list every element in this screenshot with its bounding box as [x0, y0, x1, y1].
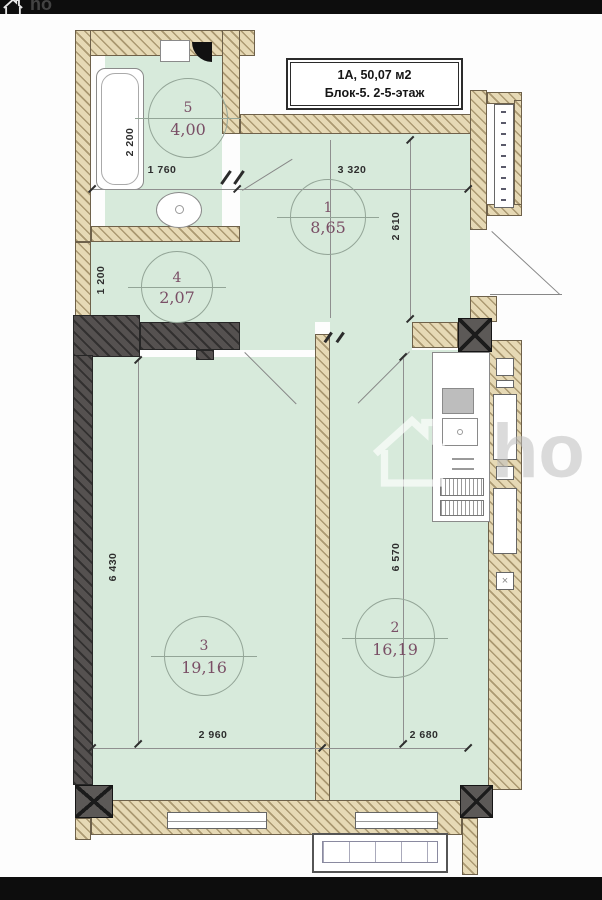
right-wall-inset-3: [496, 466, 514, 480]
dim-line-2610: [410, 140, 411, 320]
dim-1200: 1 200: [95, 250, 107, 310]
title-line-2: Блок-5. 2-5-этаж: [325, 84, 425, 102]
wall-right-upper: [470, 90, 487, 230]
appliance-grid-1: [440, 478, 484, 496]
room-number: 1: [291, 200, 365, 216]
right-wall-window-upper: [493, 394, 517, 460]
column-mid-right: [458, 318, 492, 352]
kitchen-sink: [442, 418, 478, 446]
wall-left-wc: [75, 242, 91, 322]
room-label-3: 3 19,16: [164, 616, 244, 696]
dim-line-top: [92, 189, 468, 190]
right-wall-marker-box: ×: [496, 572, 514, 590]
room-label-2: 2 16,19: [355, 598, 435, 678]
window-room2: [355, 812, 438, 829]
right-wall-window-lower: [493, 488, 517, 554]
room-number: 4: [142, 270, 212, 286]
wall-right-balcony-side: [462, 818, 478, 875]
window-room3: [167, 812, 267, 829]
wall-dark-left-lower: [73, 355, 93, 785]
wall-dark-block-left: [73, 315, 140, 357]
washbasin: [156, 192, 202, 228]
title-line-1: 1А, 50,07 м2: [338, 66, 412, 84]
right-wall-inset-1: [496, 358, 514, 376]
room-area: 16,19: [356, 640, 434, 659]
bottom-letterbox-bar: [0, 877, 602, 900]
wall-left-upper: [75, 30, 91, 242]
room-label-1: 1 8,65: [290, 179, 366, 255]
room-number: 2: [356, 620, 434, 636]
room-number: 5: [149, 100, 227, 116]
doorway-hall-to-room3: [240, 322, 315, 350]
floor-plan-screenshot: ho: [0, 0, 602, 900]
dim-2960: 2 960: [163, 729, 263, 741]
column-bottom-right: [460, 785, 493, 818]
entry-niche-window: [494, 104, 514, 208]
room-label-4: 4 2,07: [141, 251, 213, 323]
wall-kitchen-entry: [412, 322, 458, 348]
dim-line-bottom: [92, 748, 468, 749]
room-area: 19,16: [165, 658, 243, 677]
dim-2680: 2 680: [374, 729, 474, 741]
wall-bath-wc-divider: [91, 226, 240, 242]
stove: [442, 388, 474, 414]
title-block: 1А, 50,07 м2 Блок-5. 2-5-этаж: [286, 58, 463, 110]
duct-shaft-box: [160, 40, 190, 62]
dim-2200: 2 200: [124, 112, 136, 172]
appliance-grid-2: [440, 500, 484, 516]
room-area: 2,07: [142, 288, 212, 307]
room-area: 4,00: [149, 120, 227, 139]
entry-door-base-line: [490, 294, 562, 295]
room-number: 3: [165, 638, 243, 654]
wall-hall-top: [240, 114, 487, 134]
counter-symbol: [452, 458, 474, 470]
wall-left-bottom-stub: [75, 818, 91, 840]
watermark-house-icon: [2, 0, 24, 18]
room-area: 8,65: [291, 218, 365, 237]
balcony-rail: [322, 841, 438, 863]
column-bottom-left: [75, 785, 113, 818]
dim-6570: 6 570: [390, 522, 402, 592]
balcony: [312, 833, 448, 873]
dim-2610: 2 610: [390, 191, 402, 261]
top-letterbox-bar: ho: [0, 0, 602, 14]
dim-line-6570: [403, 357, 404, 745]
dim-line-6430: [138, 360, 139, 745]
entry-door-leaf: [491, 231, 560, 295]
watermark-text-top: ho: [30, 0, 52, 15]
right-wall-inset-2: [496, 380, 514, 388]
dim-6430: 6 430: [107, 532, 119, 602]
room-label-5: 5 4,00: [148, 78, 228, 158]
dim-3320: 3 320: [312, 164, 392, 176]
wall-dark-step: [196, 350, 214, 360]
wall-dark-mid-band: [140, 322, 240, 350]
wall-room-divider: [315, 334, 330, 834]
wall-niche-right: [514, 100, 522, 212]
